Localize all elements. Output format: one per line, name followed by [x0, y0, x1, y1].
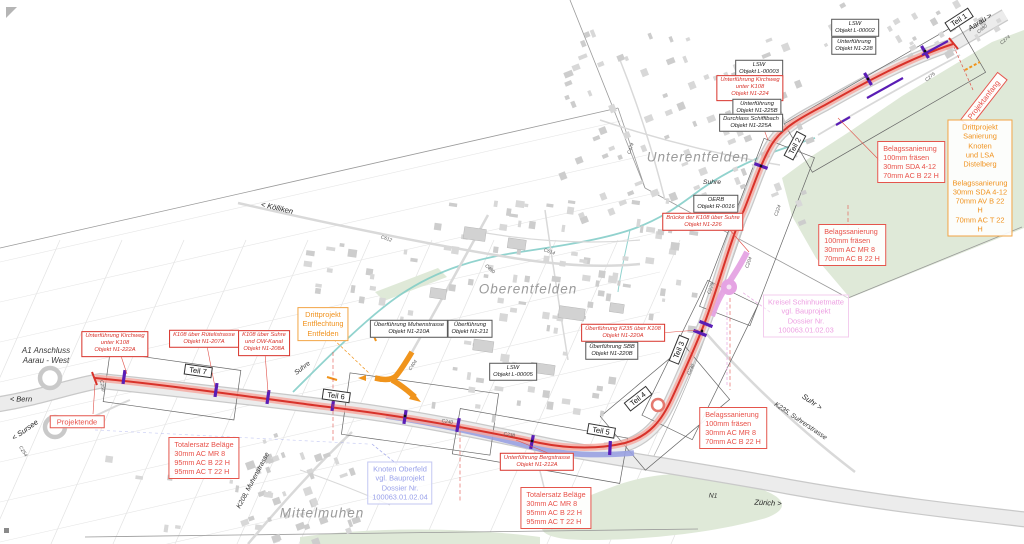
code-c224: C224 [774, 205, 784, 218]
object-l-00005: LSW Objekt L-00005 [489, 363, 537, 381]
code-c480: C480 [483, 264, 496, 276]
code-c204: C204 [745, 257, 755, 270]
dir-suhr: Suhr > [800, 392, 824, 412]
dir-aarau: Aarau > [966, 11, 993, 33]
note-projektanfang: Projektanfang [960, 72, 1008, 128]
teil-4: Teil 4 [624, 386, 653, 412]
note-drittprojekt-entfelden: Drittprojekt Entflechtung Entfelden [297, 307, 348, 341]
road-k208-muhenstrasse: K208, Muhenstrasse [236, 451, 273, 510]
dir-koelliken: < Kölliken [260, 200, 294, 216]
code-c250: C250 [97, 380, 105, 392]
note-belag-knoten: Belagssanierung 100mm fräsen 30mm AC MR … [699, 407, 767, 449]
teil-1: Teil 1 [944, 8, 973, 33]
road-n1: N1 [708, 493, 717, 502]
object-n1-212a: Unterführung Bergstrasse Objekt N1-212A [500, 453, 574, 471]
teil-3: Teil 3 [669, 335, 690, 365]
note-totalersatz-west: Totalersatz Beläge 30mm AC MR 8 95mm AC … [168, 437, 239, 479]
code-c240: C240 [441, 419, 453, 427]
object-l-00002: LSW Objekt L-00002 [831, 19, 879, 37]
object-n1-225a: Durchlass Schiffibach Objekt N1-225A [719, 114, 783, 132]
code-c404: C404 [408, 360, 419, 373]
note-knoten-oberfeld: Knoten Oberfeld vgl. Bauprojekt Dossier … [367, 462, 432, 505]
code-c274: C274 [1000, 35, 1013, 47]
teil-5: Teil 5 [586, 423, 615, 439]
object-n1-220a: Überführung K235 über K108 Objekt N1-220… [581, 324, 665, 342]
teil-6: Teil 6 [322, 388, 351, 403]
code-c254: C254 [16, 446, 27, 459]
object-n1-225b: Unterführung Objekt N1-225B [732, 99, 781, 117]
map-label-layer: UnterentfeldenOberentfeldenMittelmuhenA1… [0, 0, 1024, 544]
place-mittelmuhen: Mittelmuhen [280, 506, 365, 523]
object-n1-211: Überführung Objekt N1-211 [448, 320, 493, 338]
code-c230: C230 [687, 364, 697, 377]
code-c614: C614 [543, 248, 556, 257]
code-c474: C474 [627, 143, 637, 156]
note-drittprojekt-distelberg: Drittprojekt Sanierung Knoten und LSA Di… [947, 120, 1012, 237]
object-n1-224: Unterführung Kirchweg unter K108 Objekt … [716, 75, 783, 101]
teil-7: Teil 7 [184, 363, 213, 378]
place-oberentfelden: Oberentfelden [479, 282, 578, 299]
note-projektende: Projektende [50, 415, 105, 428]
note-belag-mitte: Belagssanierung 100mm fräsen 30mm AC MR … [818, 224, 886, 266]
road-k235-suhrerstrasse: K235, Suhrerstrasse [772, 401, 828, 443]
object-n1-210a: Überführung Muhenstrasse Objekt N1-210A [370, 320, 448, 338]
label-a1-anschluss-aarau-west: A1 Anschluss Aarau - West [22, 346, 70, 366]
object-n1-228: Unterführung Objekt N1-228 [831, 37, 876, 55]
note-belag-nord: Belagssanierung 100mm fräsen 30mm SDA 4-… [877, 141, 945, 183]
teil-2: Teil 2 [784, 131, 807, 161]
code-c229: C229 [707, 283, 717, 296]
note-kreisel-schinhuetmatte: Kreisel Schinhuetmatte vgl. Bauprojekt D… [763, 295, 849, 338]
object-n1-220b: Überführung SBB Objekt N1-220B [585, 342, 638, 360]
object-n1-207a: K108 über Rütelistrasse Objekt N1-207A [169, 330, 239, 348]
object-n1-208a: K108 über Suhre und OW-Kanal Objekt N1-2… [238, 330, 290, 356]
object-n1-226: Brücke der K108 über Suhre Objekt N1-226 [662, 213, 743, 231]
code-c612: C612 [380, 235, 393, 244]
river-label-suhre-south: Suhre [293, 360, 313, 378]
code-c480-ost: C480 [977, 24, 990, 36]
dir-bern: < Bern [10, 394, 32, 403]
object-r-0016: OERB Objekt R-0016 [693, 195, 738, 213]
dir-zuerich: Zürich > [754, 498, 782, 509]
note-totalersatz-sued: Totalersatz Beläge 30mm AC MR 8 95mm AC … [520, 487, 591, 529]
dir-sursee: < Sursee [10, 417, 40, 442]
object-l-00003: LSW Objekt L-00003 [735, 60, 783, 78]
object-n1-222a: Unterführung Kirchweg unter K108 Objekt … [81, 331, 148, 357]
place-unterentfelden: Unterentfelden [647, 150, 750, 167]
code-c276: C276 [925, 72, 938, 84]
code-c238: C238 [503, 432, 515, 440]
river-label-suhre-north: Suhre [703, 179, 721, 187]
map-plan: UnterentfeldenOberentfeldenMittelmuhenA1… [0, 0, 1024, 544]
